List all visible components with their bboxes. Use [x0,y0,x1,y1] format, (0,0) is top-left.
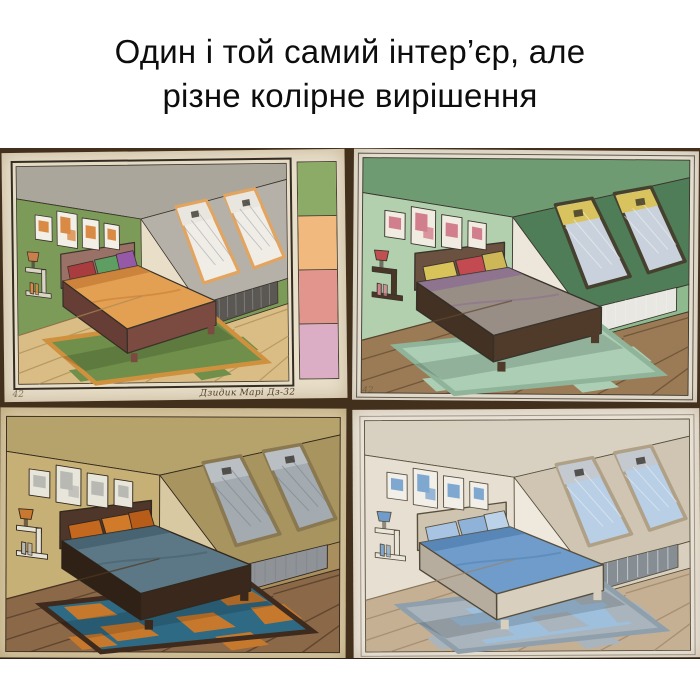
color-palette-strip [297,161,340,379]
painting-ochre-teal [0,407,348,658]
bedroom-illustration [359,414,695,657]
bedroom-illustration [11,158,295,390]
palette-swatch-green [298,162,337,217]
palette-swatch-lilac [300,324,339,378]
painting-collage: 42 Дзидик Марі Дз-32 42 [0,148,700,659]
bedroom-illustration [2,412,345,656]
painting-corner-mark: 42 [362,386,374,396]
painting-signature: Дзидик Марі Дз-32 [200,388,296,399]
painting-white-blue [351,407,700,658]
painting-green-orange: 42 Дзидик Марі Дз-32 [0,148,348,404]
bottom-margin [0,659,700,700]
post-caption: Один і той самий інтер’єр, але різне кол… [0,0,700,148]
sketchbook-page: 42 [352,149,699,403]
painting-mint-mauve: 42 [351,148,700,404]
sketchbook-page [352,408,700,658]
palette-swatch-peach [298,216,337,271]
bedroom-illustration [356,153,695,401]
painting-corner-mark: 42 [12,390,24,400]
sketchbook-page [0,407,346,658]
sketchbook-page: 42 Дзидик Марі Дз-32 [1,149,347,402]
caption-line-2: різне колірне вирішення [162,74,537,118]
caption-line-1: Один і той самий інтер’єр, але [115,30,586,74]
palette-swatch-salmon [299,270,338,325]
social-post: Один і той самий інтер’єр, але різне кол… [0,0,700,700]
